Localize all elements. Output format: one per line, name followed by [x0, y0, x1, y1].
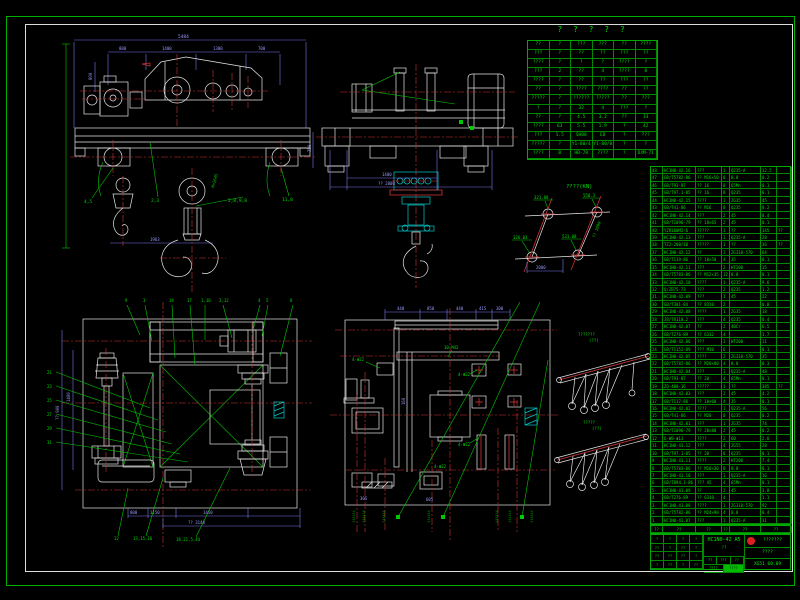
bom-cell: 33 [651, 279, 663, 286]
spec-cell: B [550, 150, 572, 159]
bom-row: 32Q/ZB75-73???2Q2351.2 [651, 286, 790, 293]
spec-rows: ????????????????????????????????????????… [528, 41, 657, 159]
bom-cell: 0.2 [761, 427, 777, 434]
bom-cell: 7 [651, 472, 663, 479]
bom-cell: 8 [722, 204, 730, 211]
bom-cell [777, 427, 792, 434]
bom-cell: 8 [722, 182, 730, 189]
bom-cell: ??? [696, 442, 722, 449]
bom-cell: ?? M16×50 [696, 174, 722, 181]
bom-cell: 8.8 [730, 271, 761, 278]
bom-cell: ??? [696, 264, 722, 271]
bom-row: 10GB/T97.1-85?? 208Q2350.1 [651, 450, 790, 457]
bom-cell: ?? 16 [696, 182, 722, 189]
bom-cell: GB/T93-87 [663, 375, 696, 382]
spec-cell: ??? [571, 41, 593, 50]
bom-row: 9HC1N0-41.11????2HT2007.4 [651, 457, 790, 464]
bom-row: 14HC1N0-42.01???1ZG3574 [651, 420, 790, 427]
tb-left-cell: ? [651, 535, 664, 544]
bom-cell: 2 [722, 457, 730, 464]
bom-cell: 31 [651, 293, 663, 300]
bom-cell: JB/T8110.2 [663, 316, 696, 323]
bom-row: 36GB/T119-86?? 10×504350.1 [651, 256, 790, 263]
bom-cell: 4 [722, 479, 730, 486]
bom-cell: 4 [722, 375, 730, 382]
bom-cell: GB/T1096-79 [663, 427, 696, 434]
bom-cell: 42 [651, 212, 663, 219]
bom-cell: HC1N0-42.08 [663, 308, 696, 315]
bom-cell: ??? [696, 316, 722, 323]
bom-cell [777, 234, 792, 241]
bom-row: 25HC1N0-42.06???1HT20011 [651, 338, 790, 345]
bom-cell: Q235 [730, 316, 761, 323]
bom-cell: 1.7 [761, 331, 777, 338]
spec-cell: ?? [571, 68, 593, 77]
bom-cell: HC1N0-42.15 [663, 197, 696, 204]
bom-cell: ?? [696, 323, 722, 330]
tb-left-row: ???? [651, 535, 703, 544]
bom-cell: 8.8 [730, 465, 761, 472]
bom-cell: ??? [696, 234, 722, 241]
bom-cell: ?? [777, 383, 792, 390]
bom-row: 48HC1N0-42.16???1Q235-A12.5 [651, 167, 790, 174]
spec-cell: ???? [528, 59, 550, 68]
spec-cell: ? [614, 132, 636, 141]
bom-cell: 2 [722, 219, 730, 226]
bom-row: 5HC1N0-41.09??2453.8 [651, 487, 790, 494]
bom-cell: 45 [730, 219, 761, 226]
spec-cell: 3.2 [593, 114, 615, 123]
bom-cell: GB/T97.1-85 [663, 450, 696, 457]
bom-cell: ?? [730, 241, 761, 248]
bom-footer-cell: ?? [696, 526, 722, 533]
bom-cell: 4 [722, 494, 730, 501]
bom-row: 24GB/T1152-89??? M1060.1 [651, 346, 790, 353]
spec-cell: ? [636, 141, 658, 150]
spec-row: ?????????????????????? [528, 95, 657, 104]
bom-cell: 1 [651, 517, 663, 524]
bom-cell [777, 316, 792, 323]
bom-cell: 45 [761, 197, 777, 204]
bom-cell: 6.5 [761, 323, 777, 330]
spec-row: ??????????????? [528, 41, 657, 50]
bom-cell: 2 [722, 264, 730, 271]
bom-cell: 8 [651, 465, 663, 472]
drawing-number-text: HC1N0-42 A5 [707, 537, 740, 543]
bom-cell: 37 [651, 249, 663, 256]
bom-cell [777, 219, 792, 226]
spec-cell: ????? [528, 141, 550, 150]
bom-cell: HT200 [730, 264, 761, 271]
tb-left-cell: ? [677, 535, 690, 544]
bom-cell: 1 [722, 472, 730, 479]
bom-cell: GB/T5783-86 [663, 465, 696, 472]
bom-cell: ???? [696, 435, 722, 442]
bom-cell: 8.8 [730, 174, 761, 181]
bom-row: 33HC1N0-42.10????1Q235-A9.6 [651, 279, 790, 286]
bom-cell: HC1N0-42.12 [663, 249, 696, 256]
bom-cell: 26 [651, 331, 663, 338]
bom-cell: Q235-A [730, 279, 761, 286]
bom-cell: HC1N0-42.05 [663, 353, 696, 360]
spec-cell: 4 [593, 68, 615, 77]
bom-cell: ??? [696, 293, 722, 300]
bom-cell: HC1N0-42.07 [663, 323, 696, 330]
title-block-signature-grid: ??????????????????????? [651, 535, 703, 569]
bom-cell: HC1N0-42.03 [663, 390, 696, 397]
spec-cell: ?? [614, 86, 636, 95]
bom-row: 37HC1N0-42.12??1ZG310-57064 [651, 249, 790, 256]
bom-cell: Q235-A [730, 167, 761, 174]
bom-cell: HC1N0-42.04 [663, 368, 696, 375]
bom-cell: ???? [696, 353, 722, 360]
bom-cell: ?? [777, 227, 792, 234]
spec-row: ???????????? [528, 59, 657, 68]
bom-cell: ?? M20×80 [696, 360, 722, 367]
bom-cell: 2 [722, 353, 730, 360]
bom-cell: 60 [730, 435, 761, 442]
spec-cell: ? [571, 59, 593, 68]
spec-cell: ??? [636, 95, 658, 104]
bom-cell: ????? [696, 227, 722, 234]
bom-row: 21HC1N0-42.04???1Q235-A48 [651, 368, 790, 375]
bom-cell [777, 517, 792, 524]
bom-cell: Q235 [730, 450, 761, 457]
tb-left-row: ??????? [651, 552, 703, 561]
bom-cell: 2 [722, 435, 730, 442]
bom-cell: GB/T301-84 [663, 301, 696, 308]
bom-cell: ??? M10 [696, 346, 722, 353]
bom-cell: 4 [722, 316, 730, 323]
bom-cell: Q235-A [730, 517, 761, 524]
bom-cell: 20 [651, 375, 663, 382]
bom-cell: Q235 [730, 286, 761, 293]
company-logo-icon [747, 537, 755, 545]
bom-cell: 0.1 [761, 375, 777, 382]
bom-cell: 0.1 [761, 256, 777, 263]
bom-cell: 8.8 [730, 360, 761, 367]
bom-cell: 0.1 [761, 271, 777, 278]
tb-left-cell: ?? [677, 544, 690, 553]
bom-cell: 11 [651, 442, 663, 449]
bom-cell: 4 [722, 442, 730, 449]
bom-row: 18HC1N0-42.03???2454.2 [651, 390, 790, 397]
bom-cell: ?? 16 [696, 189, 722, 196]
bom-cell: 1 [722, 502, 730, 509]
bom-cell: GB/T1152-89 [663, 346, 696, 353]
bom-cell: ?? [730, 383, 761, 390]
bom-cell: GB/T276-89 [663, 494, 696, 501]
spec-cell: ???? [614, 59, 636, 68]
bom-cell: 35 [730, 398, 761, 405]
spec-cell: Y1-80/4 [571, 141, 593, 150]
bom-cell: 18 [761, 308, 777, 315]
bom-row: 20GB/T93-87?? 20465Mn0.1 [651, 375, 790, 382]
bom-row: 44HC1N0-42.15????1ZG3545 [651, 197, 790, 204]
spec-cell: ?? [528, 114, 550, 123]
bom-cell: 74 [761, 420, 777, 427]
bom-cell: HC1N0-42.06 [663, 338, 696, 345]
bom-cell: 38 [651, 241, 663, 248]
spec-cell: ???? [571, 86, 593, 95]
spec-cell: ??? [593, 41, 615, 50]
bom-cell: ?? 10×60 [696, 398, 722, 405]
spec-cell: 1.9 [593, 123, 615, 132]
bom-cell: 32 [651, 286, 663, 293]
bom-row: 41GB/T1096-79?? 18×652450.1 [651, 219, 790, 226]
bom-cell: ????? [696, 241, 722, 248]
bom-cell [777, 197, 792, 204]
bom-row: 40YZR160M2-6?????1??145?? [651, 227, 790, 234]
bom-cell [777, 346, 792, 353]
tb-left-cell: ?? [664, 552, 677, 561]
bom-row: 39HC1N0-42.13???1Q235-A28 [651, 234, 790, 241]
bom-cell: 31 [761, 517, 777, 524]
bom-row: 1HC1N0-41.07???1Q235-A31 [651, 517, 790, 524]
spec-cell: ??? [528, 50, 550, 59]
tb-mid-cell: ?? [704, 557, 717, 565]
bom-cell: 2 [722, 301, 730, 308]
bom-cell: ZG35 [730, 420, 761, 427]
bom-footer-cell: ?? [730, 526, 761, 533]
bom-cell: 0.2 [761, 204, 777, 211]
bom-cell: GB/T894.1-86 [663, 479, 696, 486]
bom-cell: ZG35 [730, 308, 761, 315]
spec-cell: 63 [550, 123, 572, 132]
bom-cell [777, 301, 792, 308]
bom-cell: 0.1 [761, 450, 777, 457]
bom-cell [777, 174, 792, 181]
bom-cell: 2 [722, 323, 730, 330]
bom-cell: ?? 18×65 [696, 219, 722, 226]
bom-cell [730, 331, 761, 338]
bom-cell: 0.1 [761, 182, 777, 189]
tb-left-cell: ? [651, 561, 664, 570]
bom-cell [777, 189, 792, 196]
bom-cell [777, 360, 792, 367]
spec-row: ????BHB-78?????DXM-71 [528, 150, 657, 159]
spec-row: ????????????? [528, 50, 657, 59]
bom-cell [777, 338, 792, 345]
bom-cell: 4 [651, 494, 663, 501]
bom-cell: HT200 [730, 457, 761, 464]
bom-row: 23HC1N0-42.05????2ZG310-57035 [651, 353, 790, 360]
sheet-title: ? ? ? ? ? [545, 25, 640, 34]
bom-cell: GB/T5783-86 [663, 271, 696, 278]
bom-cell [777, 390, 792, 397]
spec-table: ????????????????????????????????????????… [527, 40, 658, 160]
spec-cell: ?? [614, 41, 636, 50]
bom-row: 15GB/T41-86?? M208Q2350.2 [651, 412, 790, 419]
bom-cell: 41 [651, 219, 663, 226]
bom-cell: 12 [722, 271, 730, 278]
bom-cell: 36 [651, 256, 663, 263]
bom-cell: 1 [722, 293, 730, 300]
drawing-number: HC1N0-42 A5 ?? [704, 535, 744, 557]
bom-cell: HC1N0-41.12 [663, 442, 696, 449]
spec-cell: ???? [528, 150, 550, 159]
bom-cell [777, 509, 792, 516]
spec-cell: ?? [593, 77, 615, 86]
spec-cell: ?? [614, 95, 636, 104]
bom-cell [777, 279, 792, 286]
bom-row: 28JB/T8110.2???4Q2350.4 [651, 316, 790, 323]
spec-cell: ?? [593, 50, 615, 59]
bom-cell: 65Mn [730, 182, 761, 189]
bom-cell: ZG310-570 [730, 502, 761, 509]
bom-cell: GB/T119-86 [663, 256, 696, 263]
bom-cell: GB/T97.1-85 [663, 189, 696, 196]
bom-cell: 17 [651, 398, 663, 405]
bom-row: 7HC1N0-41.10???1Q235-A16 [651, 472, 790, 479]
bom-row: 31HC1N0-42.09???14522 [651, 293, 790, 300]
spec-row: ?????????????? [528, 77, 657, 86]
bom-cell: ??? [696, 472, 722, 479]
bom-cell: 4 [722, 509, 730, 516]
spec-cell: ??? [614, 77, 636, 86]
drawing-number-sub: ?? [722, 545, 727, 550]
bom-cell: 10 [651, 450, 663, 457]
company-cell: ??????? [745, 535, 790, 548]
bom-row: 3HC1N0-41.08????1ZG310-57092 [651, 502, 790, 509]
bom-cell [777, 435, 792, 442]
bom-cell: HC1N0-42.01 [663, 420, 696, 427]
bom-cell: ?? 20 [696, 450, 722, 457]
bom-cell [730, 494, 761, 501]
bom-cell: 4.2 [761, 390, 777, 397]
bom-cell: HC1N0-42.13 [663, 234, 696, 241]
bom-cell: ?? M20 [696, 412, 722, 419]
bom-cell: HC1N0-41.11 [663, 457, 696, 464]
bom-cell: 27 [651, 323, 663, 330]
spec-row: ???2??4????8 [528, 68, 657, 77]
bom-cell [777, 204, 792, 211]
bom-cell [777, 264, 792, 271]
bom-cell: 28 [761, 234, 777, 241]
bom-cell: HC1N0-42.09 [663, 293, 696, 300]
spec-cell: ? [550, 41, 572, 50]
bom-cell: ??? [696, 517, 722, 524]
spec-cell: ? [593, 59, 615, 68]
bom-cell: 92 [761, 502, 777, 509]
bom-footer-cell: ?? [663, 526, 696, 533]
bom-cell: ?? 8310 [696, 301, 722, 308]
bom-cell: 0.3 [761, 360, 777, 367]
spec-cell: DXM-71 [636, 150, 658, 159]
tb-left-cell: ?? [651, 552, 664, 561]
bom-cell [777, 256, 792, 263]
bom-cell: 36 [761, 241, 777, 248]
title-block-mid-row2: ???? ???? [704, 565, 744, 573]
bom-table: 48HC1N0-42.16???1Q235-A12.547GB/T5782-86… [650, 166, 791, 525]
bom-cell: 8.4 [761, 212, 777, 219]
tb-left-row: ?????? [651, 561, 703, 570]
bom-cell: ZG310-570 [730, 249, 761, 256]
bom-cell: 46 [651, 182, 663, 189]
bom-cell: ??? [696, 286, 722, 293]
bom-cell: 1 [722, 420, 730, 427]
spec-cell: ? [528, 105, 550, 114]
bom-cell: ?? M16 [696, 204, 722, 211]
bom-cell: 48 [761, 368, 777, 375]
bom-cell: 2 [722, 487, 730, 494]
bom-cell: 1 [722, 197, 730, 204]
bom-cell: 65Mn [730, 375, 761, 382]
bom-cell: ??? [696, 212, 722, 219]
bom-cell: 28 [651, 316, 663, 323]
title-block-right: ??????? ???? XG51 60.09 [744, 535, 790, 569]
bom-cell: 4 [722, 256, 730, 263]
spec-cell: ? [614, 150, 636, 159]
bom-cell: 1 [722, 249, 730, 256]
drawing-code: XG51 60.09 [745, 559, 790, 569]
bom-row: 27HC1N0-42.07??240Cr6.5 [651, 323, 790, 330]
bom-cell: 9 [651, 457, 663, 464]
bom-cell: 1 [722, 241, 730, 248]
bom-cell: 22 [761, 293, 777, 300]
bom-cell: 56 [761, 405, 777, 412]
bom-cell: HC1N0-42.11 [663, 264, 696, 271]
bom-cell: Q235-A [730, 405, 761, 412]
bom-cell [777, 249, 792, 256]
spec-cell: ???? [593, 150, 615, 159]
bom-cell: 8 [722, 450, 730, 457]
bom-cell: 39 [651, 234, 663, 241]
bom-cell: Q235-A [730, 368, 761, 375]
spec-cell: ? [550, 50, 572, 59]
bom-cell: 44 [651, 197, 663, 204]
bom-cell [777, 472, 792, 479]
tb-stamp-cell: ???? [724, 565, 744, 573]
bom-cell: 35 [651, 264, 663, 271]
tb-left-cell: ?? [651, 544, 664, 553]
bom-cell: 43 [651, 204, 663, 211]
spec-cell: ? [550, 105, 572, 114]
bom-cell [777, 323, 792, 330]
bom-row: 17GB/T117-86?? 10×604350.1 [651, 398, 790, 405]
bom-cell: HC1N0-42.14 [663, 212, 696, 219]
bom-cell: HC1N0-42.10 [663, 279, 696, 286]
spec-cell: ?? [614, 114, 636, 123]
bom-cell: 385 [761, 383, 777, 390]
bom-row: 6GB/T894.1-86??? 45465Mn0.1 [651, 479, 790, 486]
bom-cell [730, 301, 761, 308]
bom-cell: ZG55 [730, 442, 761, 449]
bom-row: 42HC1N0-42.14???2458.4 [651, 212, 790, 219]
bom-cell: ??? [696, 420, 722, 427]
bom-cell: GB/T93-87 [663, 182, 696, 189]
bom-cell: 19 [651, 383, 663, 390]
bom-cell [777, 420, 792, 427]
bom-cell [777, 405, 792, 412]
bom-cell: 145 [761, 227, 777, 234]
bom-cell: 34 [651, 271, 663, 278]
spec-cell: ?? [636, 86, 658, 95]
bom-cell: ?? [730, 227, 761, 234]
bom-cell: HC1N0-42.02 [663, 405, 696, 412]
bom-cell: ZQ-400-16 [663, 383, 696, 390]
bom-footer-row: ???????????? [651, 526, 792, 533]
bom-cell: ?? 6312 [696, 331, 722, 338]
tb-mid-cell: ?? [731, 557, 744, 565]
bom-cell: 14 [651, 420, 663, 427]
bom-cell: GB/T5782-86 [663, 174, 696, 181]
spec-cell: ED [593, 132, 615, 141]
bom-cell: GB/T276-89 [663, 331, 696, 338]
bom-cell: 29 [651, 308, 663, 315]
bom-cell [777, 353, 792, 360]
bom-cell [777, 457, 792, 464]
